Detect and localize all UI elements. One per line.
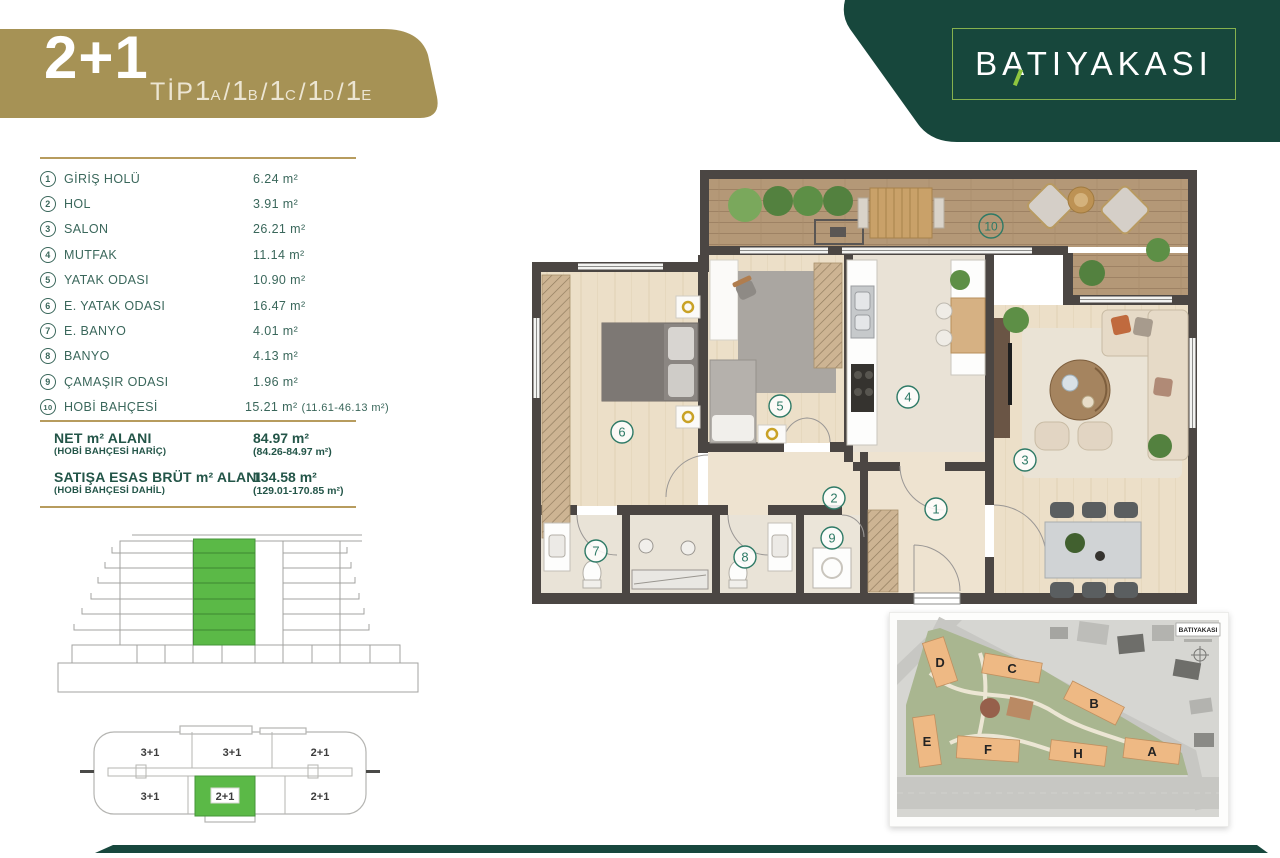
room-area: 6.24 m² bbox=[253, 172, 298, 186]
building-label: E bbox=[923, 734, 932, 749]
svg-text:1: 1 bbox=[932, 502, 939, 517]
plant bbox=[728, 188, 762, 222]
highlighted-unit-column bbox=[194, 539, 256, 645]
nightstand bbox=[676, 296, 700, 318]
wardrobe bbox=[542, 275, 570, 538]
stove bbox=[851, 364, 874, 412]
room-area-range: (11.61-46.13 m²) bbox=[302, 402, 390, 414]
wardrobe bbox=[814, 263, 842, 368]
building-label: F bbox=[984, 742, 992, 757]
svg-text:5: 5 bbox=[776, 399, 783, 414]
plant bbox=[1079, 260, 1105, 286]
plant bbox=[1146, 238, 1170, 262]
room-label: SALON bbox=[64, 222, 108, 236]
entry-wardrobe bbox=[868, 510, 898, 592]
room-area-list: 1GİRİŞ HOLÜ6.24 m² 2HOL3.91 m² 3SALON26.… bbox=[40, 157, 356, 508]
list-item: 4MUTFAK11.14 m² bbox=[40, 242, 356, 267]
room-area: 3.91 m² bbox=[253, 197, 298, 211]
room-label: MUTFAK bbox=[64, 248, 117, 262]
room-marker-master-bath: 7 bbox=[585, 540, 607, 562]
laundry-fixtures bbox=[813, 548, 851, 588]
list-item: 1GİRİŞ HOLÜ6.24 m² bbox=[40, 166, 356, 191]
pillow bbox=[1133, 317, 1154, 338]
dining-chair bbox=[1050, 582, 1074, 598]
net-area-label: NET m² ALANI bbox=[54, 430, 356, 446]
room-label: HOBİ BAHÇESİ bbox=[64, 400, 158, 414]
dining-chair bbox=[1082, 582, 1106, 598]
gross-area-range: (129.01-170.85 m²) bbox=[253, 485, 343, 497]
room-area: 1.96 m² bbox=[253, 375, 298, 389]
list-item: 8BANYO4.13 m² bbox=[40, 344, 356, 369]
brand-logo-panel: BATIYAKASI bbox=[840, 0, 1280, 142]
room-label: GİRİŞ HOLÜ bbox=[64, 172, 140, 186]
room-label: ÇAMAŞIR ODASI bbox=[64, 375, 169, 389]
svg-text:6: 6 bbox=[618, 425, 625, 440]
footer-bar bbox=[0, 840, 1280, 850]
gross-area-value: 134.58 m² bbox=[253, 469, 317, 485]
svg-text:9: 9 bbox=[828, 531, 835, 546]
room-label: HOL bbox=[64, 197, 91, 211]
list-item: 3SALON26.21 m² bbox=[40, 217, 356, 242]
svg-text:4: 4 bbox=[904, 390, 911, 405]
room-marker-kitchen: 4 bbox=[897, 386, 919, 408]
brand-logo-box: BATIYAKASI bbox=[952, 28, 1236, 100]
keyplan-unit-label: 3+1 bbox=[141, 747, 160, 759]
room-area: 16.47 m² bbox=[253, 299, 306, 313]
room-label: E. BANYO bbox=[64, 324, 126, 338]
floor-key-plan: 3+1 3+1 2+1 3+1 2+1 2+1 bbox=[80, 716, 380, 845]
keyplan-unit-label-highlighted: 2+1 bbox=[216, 791, 235, 803]
list-item: 6E. YATAK ODASI16.47 m² bbox=[40, 293, 356, 318]
room-label: E. YATAK ODASI bbox=[64, 299, 165, 313]
dining-chair bbox=[1082, 502, 1106, 518]
washing-machine bbox=[813, 548, 851, 588]
net-area-block: NET m² ALANI (HOBİ BAHÇESİ HARİÇ) 84.97 … bbox=[54, 430, 356, 457]
svg-text:3: 3 bbox=[1021, 453, 1028, 468]
svg-text:7: 7 bbox=[592, 544, 599, 559]
unit-type-banner: 2+1 TİP1A/1B/1C/1D/1E bbox=[0, 29, 450, 119]
keyplan-unit-label: 3+1 bbox=[223, 747, 242, 759]
list-item: 9ÇAMAŞIR ODASI1.96 m² bbox=[40, 369, 356, 394]
keyplan-tick-right bbox=[366, 770, 380, 773]
list-item: 10HOBİ BAHÇESİ15.21 m²(11.61-46.13 m²) bbox=[40, 395, 356, 420]
dining-chair bbox=[1114, 582, 1138, 598]
breakfast-table bbox=[951, 298, 985, 353]
tv bbox=[1008, 343, 1012, 405]
room-marker-master-bedroom: 6 bbox=[611, 421, 633, 443]
room-label: YATAK ODASI bbox=[64, 273, 149, 287]
tv-cabinet bbox=[994, 318, 1010, 438]
room-label: BANYO bbox=[64, 349, 110, 363]
room-marker-bedroom: 5 bbox=[769, 395, 791, 417]
room-area: 4.13 m² bbox=[253, 349, 298, 363]
dining-chair bbox=[1114, 502, 1138, 518]
pillow bbox=[1110, 314, 1131, 335]
keyplan-unit-label: 2+1 bbox=[311, 747, 330, 759]
plant bbox=[1148, 434, 1172, 458]
garden-table bbox=[870, 188, 932, 238]
armchair bbox=[1078, 422, 1112, 450]
wardrobe-white bbox=[710, 260, 738, 340]
tip-word: TİP bbox=[150, 78, 195, 106]
svg-text:8: 8 bbox=[741, 550, 748, 565]
pillow bbox=[1153, 377, 1173, 397]
building-label: C bbox=[1007, 661, 1017, 676]
washbasin bbox=[639, 539, 653, 553]
room-marker-livingroom: 3 bbox=[1014, 449, 1036, 471]
washbasin bbox=[681, 541, 695, 555]
building-elevation-diagram bbox=[28, 522, 440, 717]
keyplan-unit-label: 3+1 bbox=[141, 791, 160, 803]
stool bbox=[936, 303, 952, 319]
site-plan: D C B E F H A BATIYAKASI bbox=[889, 612, 1229, 827]
list-item: 5YATAK ODASI10.90 m² bbox=[40, 268, 356, 293]
divider-line-bottom bbox=[40, 506, 356, 508]
dining-chair bbox=[1050, 502, 1074, 518]
brand-logo-text: BATIYAKASI bbox=[975, 45, 1213, 83]
room-area: 26.21 m² bbox=[253, 222, 306, 236]
room-area: 15.21 m²(11.61-46.13 m²) bbox=[245, 400, 389, 414]
unit-type-title: 2+1 bbox=[44, 23, 149, 92]
svg-text:BATIYAKASI: BATIYAKASI bbox=[1179, 627, 1218, 634]
totals-block: NET m² ALANI (HOBİ BAHÇESİ HARİÇ) 84.97 … bbox=[40, 422, 356, 506]
room-area: 11.14 m² bbox=[253, 248, 305, 262]
svg-text:2: 2 bbox=[830, 491, 837, 506]
stool bbox=[936, 330, 952, 346]
list-item: 2HOL3.91 m² bbox=[40, 191, 356, 216]
site-feature-circle bbox=[980, 698, 1000, 718]
keyplan-tick-left bbox=[80, 770, 94, 773]
list-item: 7E. BANYO4.01 m² bbox=[40, 318, 356, 343]
keyplan-unit-label: 2+1 bbox=[311, 791, 330, 803]
gross-area-block: SATIŞA ESAS BRÜT m² ALANI (HOBİ BAHÇESİ … bbox=[54, 469, 356, 496]
building-label: A bbox=[1147, 744, 1157, 759]
room-marker-bathroom: 8 bbox=[734, 546, 756, 568]
room-marker-laundry: 9 bbox=[821, 527, 843, 549]
room-area: 4.01 m² bbox=[253, 324, 298, 338]
room-area: 10.90 m² bbox=[253, 273, 306, 287]
svg-text:10: 10 bbox=[984, 220, 998, 234]
net-area-value: 84.97 m² bbox=[253, 430, 309, 446]
nightstand bbox=[758, 425, 786, 443]
plant bbox=[950, 270, 970, 290]
room-marker-hall: 2 bbox=[823, 487, 845, 509]
apartment-floor-plan: 1 2 3 4 5 6 7 8 9 10 bbox=[530, 168, 1198, 637]
building-label: B bbox=[1089, 696, 1098, 711]
building-label: D bbox=[935, 655, 944, 670]
unit-tip-label: TİP1A/1B/1C/1D/1E bbox=[150, 75, 372, 107]
coffee-table bbox=[1050, 360, 1110, 420]
room-marker-entry: 1 bbox=[925, 498, 947, 520]
net-area-range: (84.26-84.97 m²) bbox=[253, 446, 332, 458]
armchair bbox=[1035, 422, 1069, 450]
room-rows: 1GİRİŞ HOLÜ6.24 m² 2HOL3.91 m² 3SALON26.… bbox=[40, 159, 356, 420]
dining-table bbox=[1045, 522, 1141, 578]
building-label: H bbox=[1073, 746, 1082, 761]
nightstand bbox=[676, 406, 700, 428]
